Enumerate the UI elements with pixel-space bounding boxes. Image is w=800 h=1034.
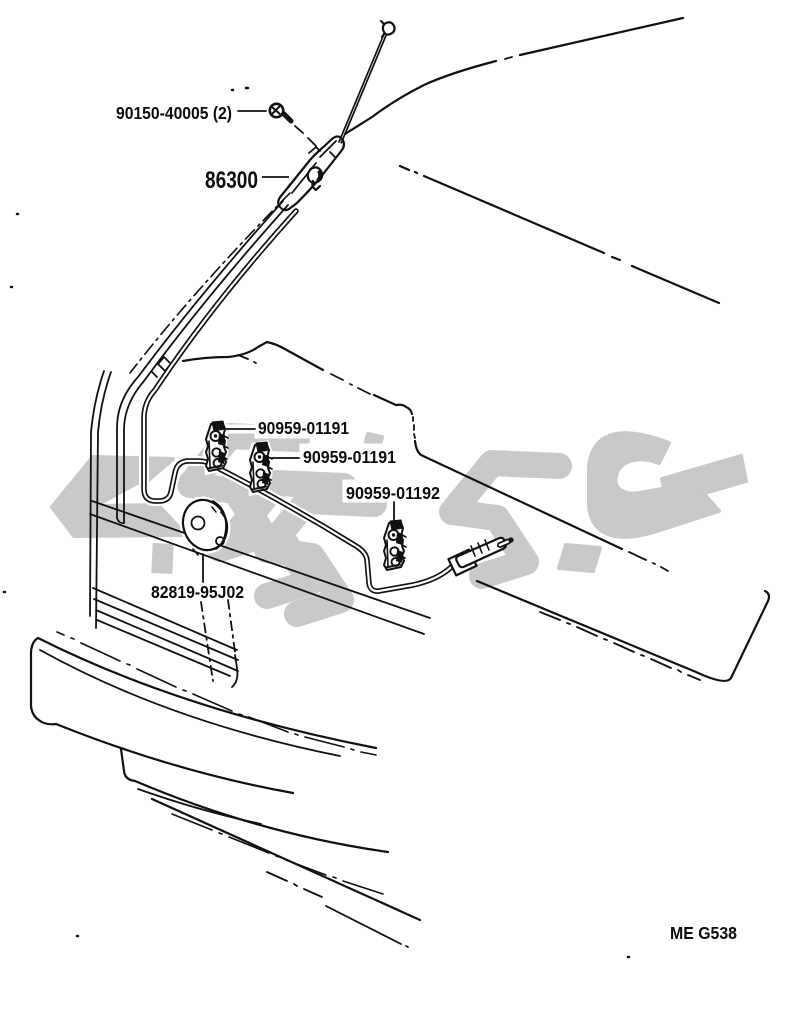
svg-text:90959-01191: 90959-01191 <box>258 418 349 438</box>
svg-text:90959-01191: 90959-01191 <box>303 447 396 467</box>
svg-text:ME G538: ME G538 <box>670 923 737 943</box>
svg-text:86300: 86300 <box>205 167 258 194</box>
svg-text:90959-01192: 90959-01192 <box>346 483 440 503</box>
svg-text:82819-95J02: 82819-95J02 <box>151 582 244 602</box>
svg-text:90150-40005 (2): 90150-40005 (2) <box>116 103 232 123</box>
